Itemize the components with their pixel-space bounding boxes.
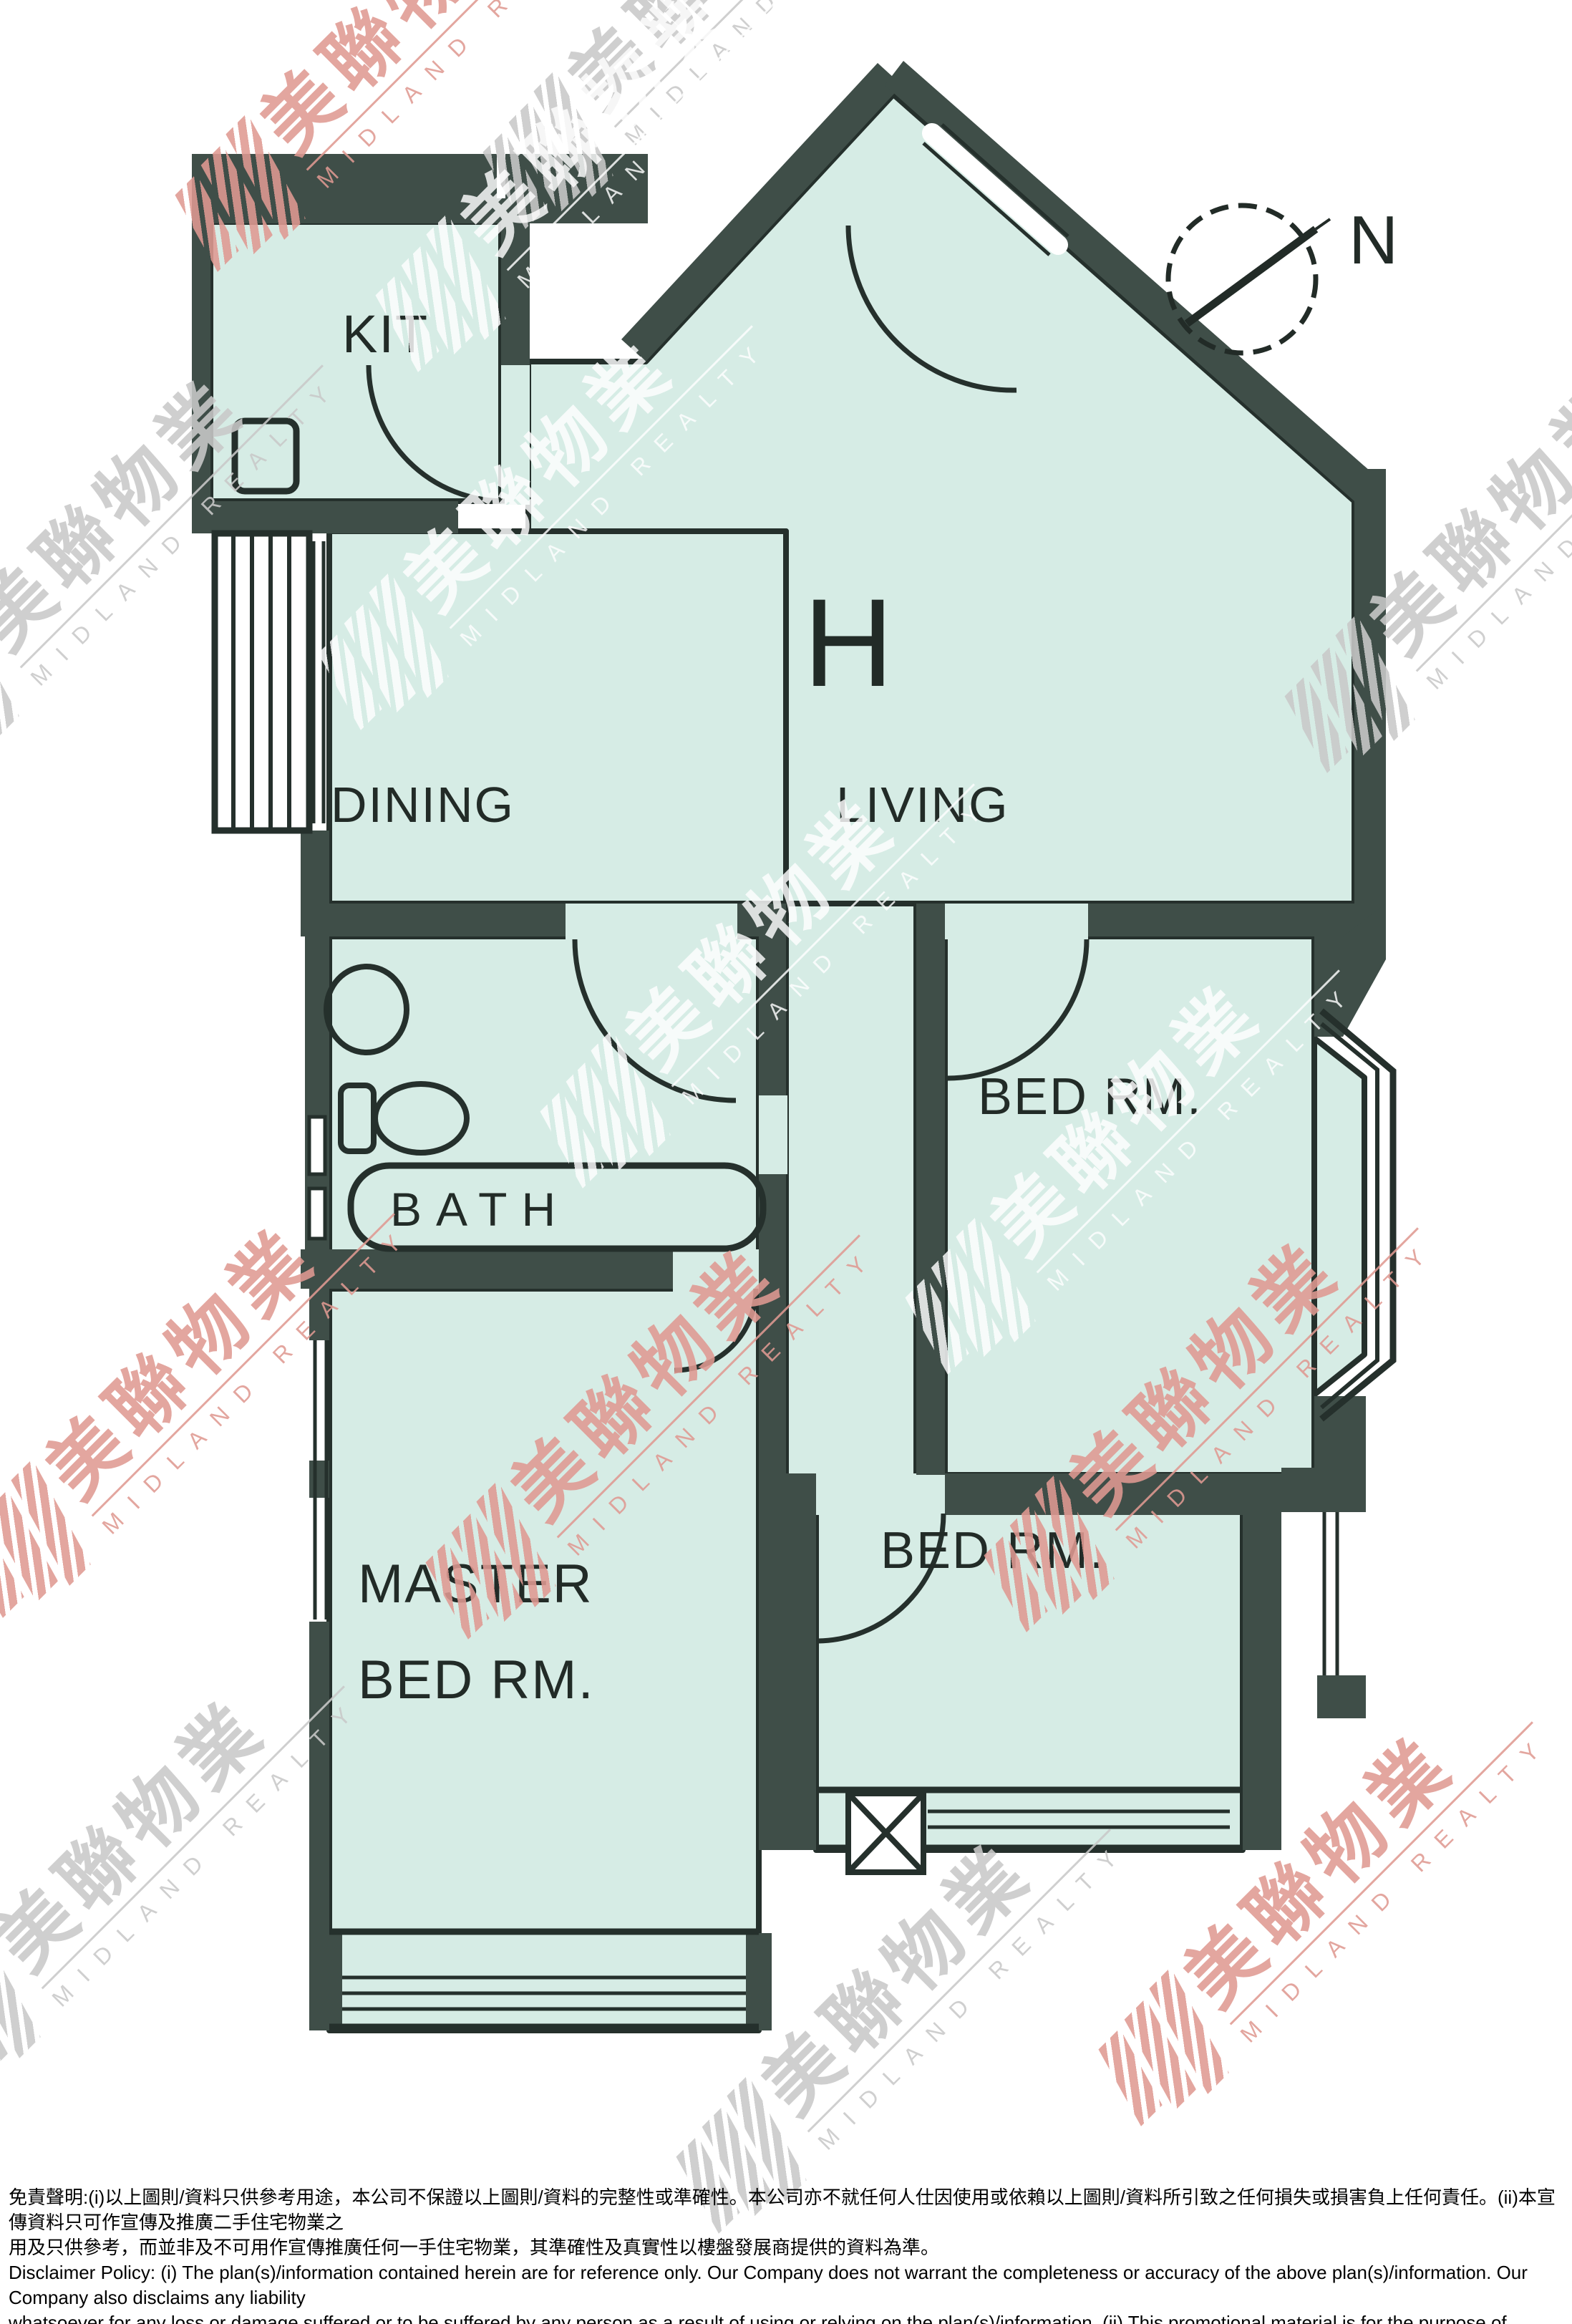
corridor bbox=[786, 904, 916, 1512]
compass-north-label: N bbox=[1349, 202, 1398, 279]
compass-needle bbox=[1187, 229, 1316, 324]
bedroom1-label: BED RM. bbox=[978, 1068, 1203, 1125]
disclaimer-block: 免責聲明:(i)以上圖則/資料只供參考用途，本公司不保證以上圖則/資料的完整性或… bbox=[9, 2185, 1568, 2324]
master-label-line2: BED RM. bbox=[358, 1650, 595, 1710]
unit-label: H bbox=[803, 573, 895, 713]
bathroom-block bbox=[329, 936, 759, 1289]
disclaimer-line-zh-2: 用及只供參考，而並非及不可用作宣傳推廣任何一手住宅物業，其準確性及真實性以樓盤發… bbox=[9, 2235, 1568, 2260]
room-dining bbox=[329, 531, 786, 904]
master-label-line1: MASTER bbox=[358, 1554, 593, 1614]
disclaimer-line-zh-1: 免責聲明:(i)以上圖則/資料只供參考用途，本公司不保證以上圖則/資料的完整性或… bbox=[9, 2185, 1568, 2235]
dining-label: DINING bbox=[331, 777, 515, 833]
living-label: LIVING bbox=[836, 777, 1009, 833]
disclaimer-line-en-1: Disclaimer Policy: (i) The plan(s)/infor… bbox=[9, 2260, 1568, 2310]
disclaimer-line-en-2: whatsoever for any loss or damage suffer… bbox=[9, 2310, 1568, 2324]
bedroom2-label: BED RM. bbox=[880, 1522, 1105, 1579]
ac-box bbox=[848, 1793, 923, 1872]
louver-window bbox=[215, 533, 309, 831]
floor-plan-svg: N KIT H DINING LIVING BED RM. BATH MASTE… bbox=[0, 0, 1572, 2324]
kitchen-label: KIT bbox=[342, 304, 429, 364]
bath-label: BATH bbox=[390, 1183, 570, 1236]
room-bedroom1 bbox=[945, 936, 1314, 1475]
bay-window-floor bbox=[1314, 1038, 1364, 1395]
floor-plan-page: N KIT H DINING LIVING BED RM. BATH MASTE… bbox=[0, 0, 1572, 2324]
